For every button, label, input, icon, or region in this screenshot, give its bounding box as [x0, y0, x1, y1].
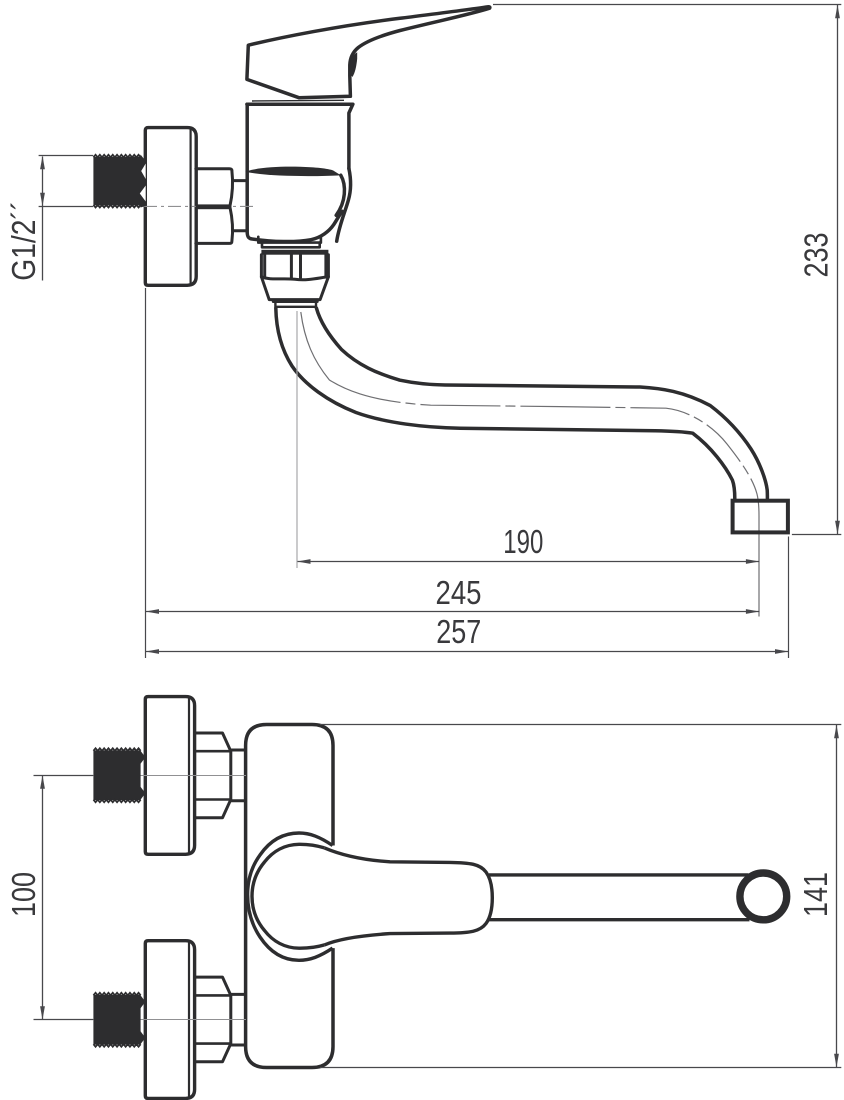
- svg-text:257: 257: [436, 613, 481, 650]
- svg-text:G1/2´´: G1/2´´: [5, 201, 42, 281]
- svg-text:233: 233: [798, 233, 835, 278]
- svg-text:141: 141: [797, 872, 834, 917]
- svg-text:245: 245: [436, 574, 482, 611]
- svg-text:100: 100: [5, 872, 42, 917]
- svg-text:190: 190: [503, 523, 543, 560]
